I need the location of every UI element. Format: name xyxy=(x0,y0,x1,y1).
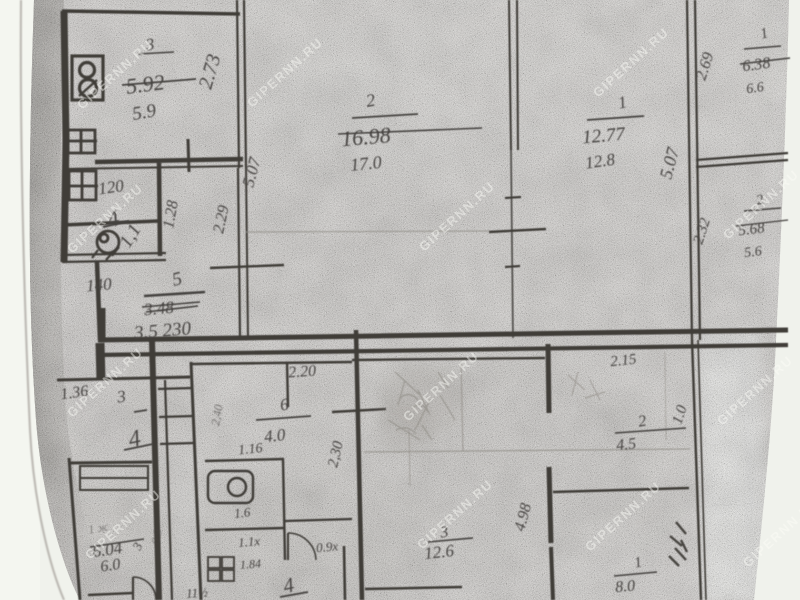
svg-text:1.1х: 1.1х xyxy=(237,533,260,550)
svg-text:6.6: 6.6 xyxy=(745,80,764,97)
svg-text:17.0: 17.0 xyxy=(349,152,382,175)
svg-text:0.9х: 0.9х xyxy=(315,538,338,555)
svg-text:11½: 11½ xyxy=(185,584,208,600)
svg-text:140: 140 xyxy=(85,274,113,295)
svg-text:8.0: 8.0 xyxy=(614,577,635,596)
svg-text:5.9: 5.9 xyxy=(131,100,159,125)
svg-text:2.20: 2.20 xyxy=(288,363,317,382)
svg-text:1.16: 1.16 xyxy=(237,441,263,458)
svg-text:4.5: 4.5 xyxy=(615,435,637,454)
svg-text:2.15: 2.15 xyxy=(609,352,637,371)
svg-text:16.98: 16.98 xyxy=(340,122,391,151)
svg-text:6.0: 6.0 xyxy=(99,556,121,576)
svg-text:5.6: 5.6 xyxy=(743,244,762,261)
svg-text:12.77: 12.77 xyxy=(581,124,627,149)
svg-text:4.0: 4.0 xyxy=(263,425,287,446)
svg-text:1.84: 1.84 xyxy=(240,556,262,571)
svg-text:1.6: 1.6 xyxy=(233,504,251,521)
